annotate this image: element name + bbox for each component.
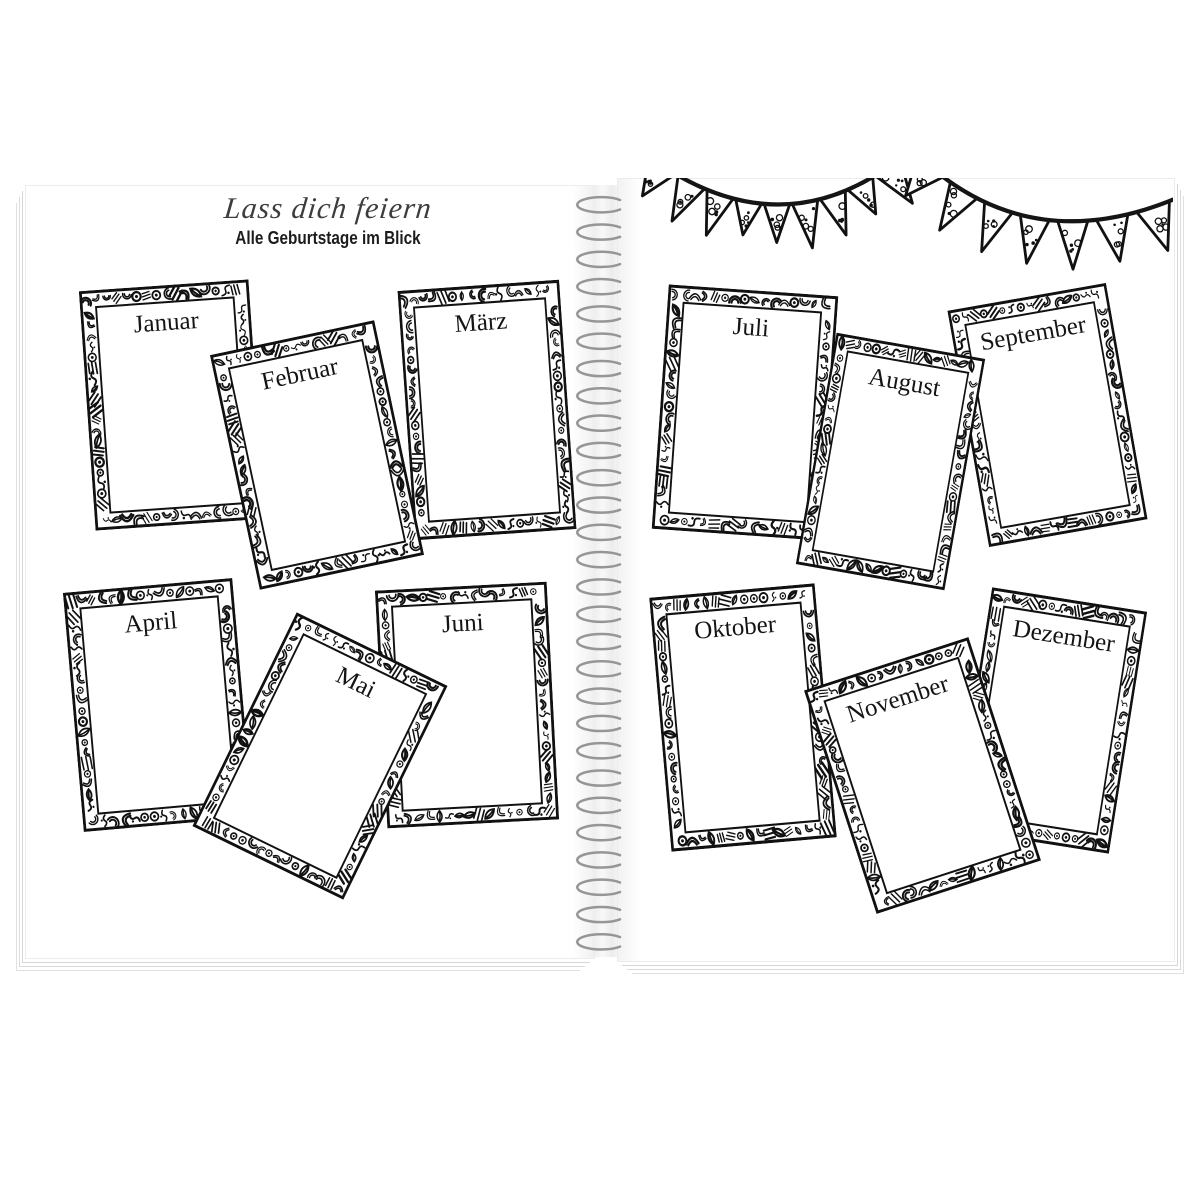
spiral-binding-icon xyxy=(568,190,632,990)
bunting-icon xyxy=(617,178,1173,282)
page-title-block: Lass dich feiern Alle Geburtstage im Bli… xyxy=(178,192,478,249)
month-frame-oktober: Oktober xyxy=(649,583,837,851)
page-title: Lass dich feiern xyxy=(176,192,480,226)
page-subtitle: Alle Geburtstage im Blick xyxy=(201,228,456,249)
birthday-calendar-photo: Lass dich feiern Alle Geburtstage im Bli… xyxy=(0,0,1200,1200)
month-frame-maerz: März xyxy=(397,280,576,541)
